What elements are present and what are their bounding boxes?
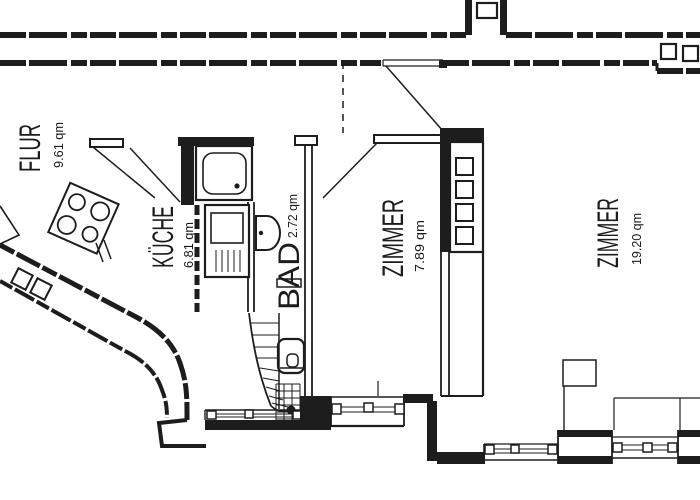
flur-door-swings (90, 139, 180, 202)
flur-area: 9.61 qm (51, 122, 66, 168)
kitchen-sink-icon (205, 205, 249, 277)
wall-block-bottom-right (678, 430, 700, 464)
bad-area: 2.72 qm (285, 194, 300, 238)
window-small-room (331, 381, 404, 426)
door-swing-corridor (386, 60, 447, 131)
window-large-room-2 (612, 398, 700, 458)
zimmer-klein-area: 7.89 qm (412, 220, 427, 272)
exterior-wall-top (0, 35, 700, 71)
zimmer-klein-label: ZIMMER (377, 199, 410, 277)
kueche-area: 6.81 qm (181, 222, 196, 268)
wall-flue-squares-right (661, 44, 698, 61)
wall-block-bottom (300, 396, 331, 430)
kueche-label: KÜCHE (147, 206, 180, 268)
stove-icon (48, 183, 118, 254)
chimney-top (465, 0, 507, 35)
window-large-room-1 (484, 444, 558, 460)
entry-door-swing (0, 206, 19, 244)
south-wall-step (403, 394, 485, 464)
shower-icon (196, 146, 252, 200)
small-room-door (323, 135, 443, 198)
chimney-shaft (440, 128, 484, 396)
diagonal-exterior-wall (0, 245, 206, 446)
flur-label: FLUR (14, 124, 47, 172)
bad-label: BAD (273, 242, 306, 310)
zimmer-gross-area: 19.20 qm (629, 213, 644, 265)
zimmer-gross-label: ZIMMER (592, 198, 625, 268)
floor-plan: FLUR 9.61 qm KÜCHE 6.81 qm BAD 2.72 qm Z… (0, 0, 700, 500)
wall-pier-between-windows (558, 360, 612, 464)
floor-plan-drawing: FLUR 9.61 qm KÜCHE 6.81 qm BAD 2.72 qm Z… (0, 0, 700, 500)
toilet-icon (278, 339, 304, 373)
